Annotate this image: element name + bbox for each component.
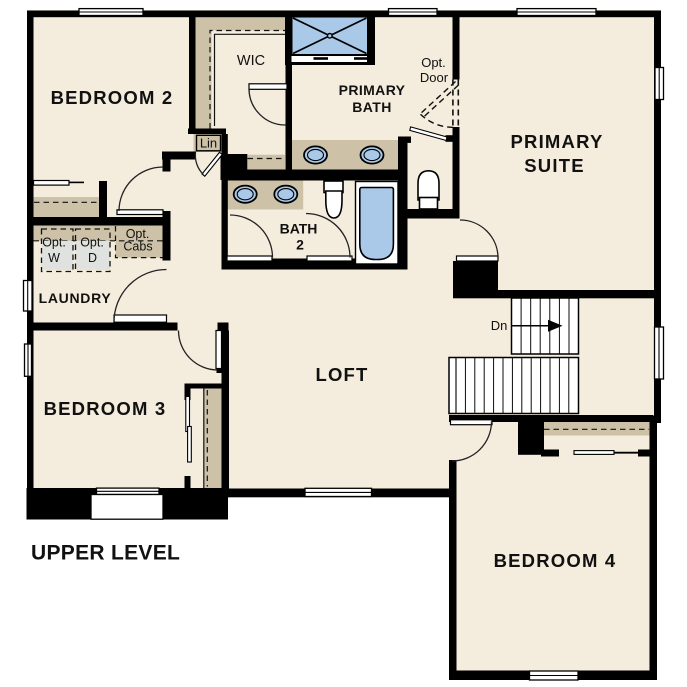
- svg-text:Dn: Dn: [491, 318, 508, 333]
- svg-text:WIC: WIC: [237, 53, 265, 69]
- svg-text:BATH: BATH: [352, 99, 391, 115]
- svg-text:UPPER LEVEL: UPPER LEVEL: [31, 542, 180, 565]
- svg-text:BEDROOM 2: BEDROOM 2: [51, 87, 174, 108]
- svg-text:Door: Door: [420, 70, 449, 85]
- svg-text:Opt.: Opt.: [80, 236, 104, 250]
- svg-text:Cabs: Cabs: [123, 240, 152, 254]
- svg-text:LAUNDRY: LAUNDRY: [39, 290, 112, 306]
- svg-text:BEDROOM 4: BEDROOM 4: [494, 550, 617, 571]
- svg-text:PRIMARY: PRIMARY: [510, 131, 603, 152]
- svg-text:Opt.: Opt.: [42, 236, 66, 250]
- svg-text:D: D: [88, 251, 97, 265]
- svg-text:Opt.: Opt.: [421, 55, 446, 70]
- svg-text:Lin: Lin: [200, 136, 217, 151]
- svg-text:2: 2: [296, 237, 304, 253]
- svg-text:LOFT: LOFT: [315, 364, 368, 385]
- svg-text:SUITE: SUITE: [524, 155, 584, 176]
- svg-text:BEDROOM 3: BEDROOM 3: [44, 398, 167, 419]
- svg-text:BATH: BATH: [280, 221, 318, 237]
- svg-text:PRIMARY: PRIMARY: [339, 82, 406, 98]
- svg-text:W: W: [48, 251, 60, 265]
